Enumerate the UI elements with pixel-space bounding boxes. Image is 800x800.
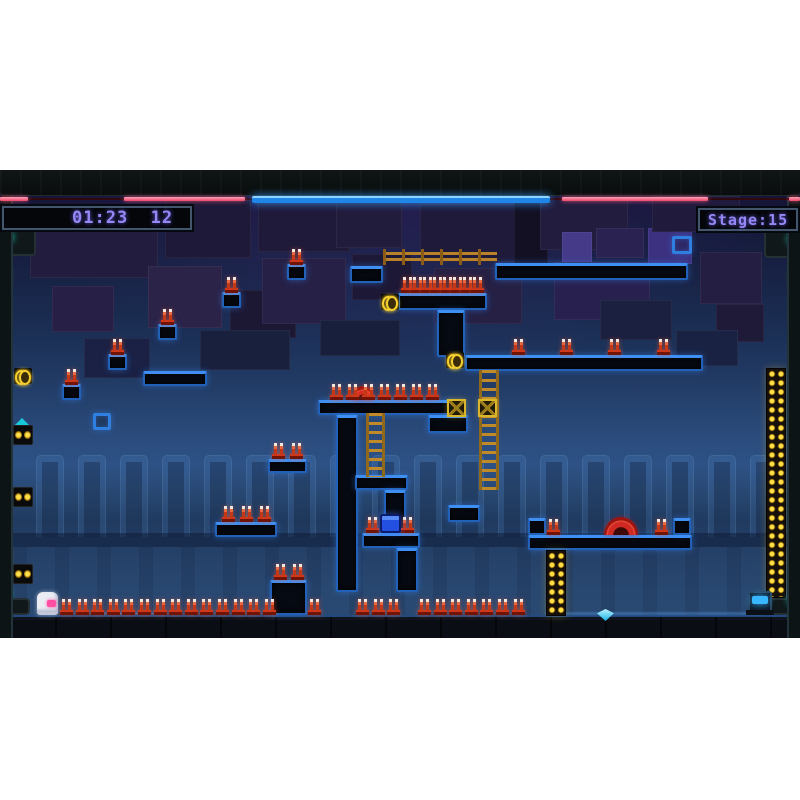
platform [448,505,480,522]
spike-trap [216,599,229,615]
spike-trap [657,339,670,355]
spike-trap [378,384,391,400]
platform [143,371,207,386]
frame-left-rail [0,196,13,638]
platform [398,293,487,310]
platform [396,548,418,592]
spike-trap [471,277,484,293]
ladder [479,370,499,490]
spike-trap [512,599,525,615]
spike-trap [169,599,182,615]
platform [465,355,703,371]
frame-right-rail [787,196,800,638]
spike-trap [465,599,478,615]
bg-pillar [414,455,442,537]
spike-trap [308,599,321,615]
stage-text: Stage:15 [708,211,788,229]
spike-trap [480,599,493,615]
spike-trap [154,599,167,615]
hollow-box [672,236,692,254]
spike-trap [655,519,668,535]
spike-trap [76,599,89,615]
bg-pillar [36,455,64,537]
bg-pillar [120,455,148,537]
platform [158,324,177,340]
hud-strip-segment [124,197,245,201]
crate [478,399,497,417]
spike-trap [366,517,379,533]
spike-trap [60,599,73,615]
platform [355,475,408,490]
speaker-box [13,564,33,584]
spike-trap [547,519,560,535]
hud-strip-segment [0,197,28,201]
light-column [766,368,786,598]
spike-trap [434,599,447,615]
spike-trap [272,443,285,459]
playfield [0,170,800,638]
spike-trap [274,564,287,580]
spike-trap [346,384,359,400]
letterbox-bottom [0,638,800,800]
platform [268,459,307,473]
spike-trap [291,564,304,580]
hollow-box [93,413,111,430]
spike-trap [608,339,621,355]
platform [495,263,688,280]
spike-trap [107,599,120,615]
bg-panel [320,320,400,356]
platform [428,415,468,433]
platform [350,266,383,283]
spike-trap [394,384,407,400]
speaker-box [13,425,33,445]
bg-pillar [498,455,526,537]
platform [336,415,358,592]
platform [62,384,81,400]
spike-trap [330,384,343,400]
floor-sheen [545,612,763,615]
bg-pillar [78,455,106,537]
spike-trap [560,339,573,355]
platform [108,354,127,370]
platform [362,533,420,548]
spike-trap [232,599,245,615]
spike-trap [418,599,431,615]
spike-trap [247,599,260,615]
hud-strip-segment [562,197,708,201]
spike-trap [356,599,369,615]
floor [0,615,800,638]
platform [528,518,546,535]
spike-trap [263,599,276,615]
bg-pillar [162,455,190,537]
fence-bridge [383,249,497,265]
spike-trap [449,599,462,615]
timer-text: 01:23 12 [72,208,173,228]
bg-pillar [708,455,736,537]
spike-trap [426,384,439,400]
light-column [546,550,566,616]
spike-trap [410,384,423,400]
bg-panel [336,202,402,248]
spike-trap [512,339,525,355]
platform [528,535,692,550]
spike-trap [200,599,213,615]
spike-trap [240,506,253,522]
platform [437,310,465,357]
bg-panel [52,286,114,332]
battery-item [381,294,399,310]
spike-trap [258,506,271,522]
spike-trap [290,249,303,265]
spike-trap [372,599,385,615]
bg-panel [700,252,762,304]
spike-trap [225,277,238,293]
crate [447,399,466,417]
spike-trap [65,369,78,385]
spike-trap [496,599,509,615]
stage-panel: Stage:15 [698,208,798,231]
platform [215,522,277,537]
bg-panel [596,228,644,258]
platform [222,292,241,308]
hud-strip-segment [789,197,800,201]
blue-box [380,514,401,533]
letterbox-top [0,0,800,170]
platform [673,518,691,535]
spike-trap [111,339,124,355]
beacon-wedge [15,418,29,425]
ladder [366,413,385,477]
frame-top-bar [0,170,800,196]
speaker-box [13,487,33,507]
timer-panel: 01:23 12 [2,206,192,230]
spike-trap [290,443,303,459]
spike-trap [362,384,375,400]
exit-machine [748,591,772,613]
battery-item [14,368,32,384]
spike-trap [185,599,198,615]
battery-item [446,352,464,368]
spike-trap [222,506,235,522]
spike-trap [401,517,414,533]
spike-trap [122,599,135,615]
bg-panel [200,330,290,370]
spike-trap [387,599,400,615]
platform [318,400,452,415]
spike-trap [161,309,174,325]
bg-panel [600,300,672,340]
bg-panel [148,266,222,328]
spike-trap [138,599,151,615]
spike-trap [91,599,104,615]
hud-progress-bar [252,196,550,203]
game-viewport[interactable]: 01:23 12 Stage:15 [0,170,800,638]
platform [287,264,306,280]
player-character [37,592,58,615]
